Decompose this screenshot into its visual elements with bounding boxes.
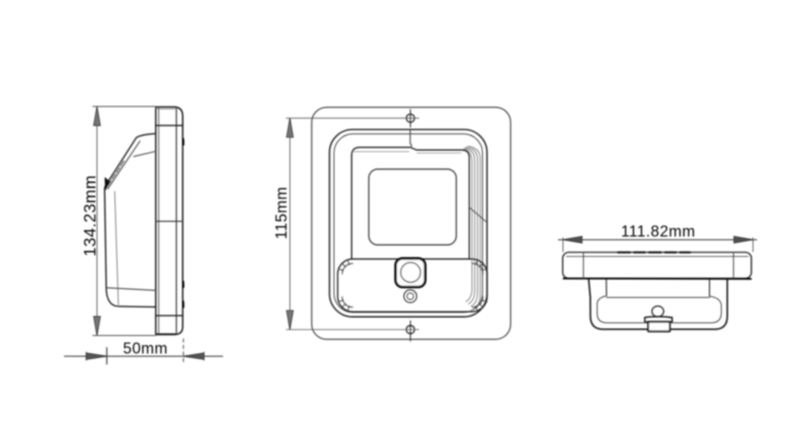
svg-text:111.82mm: 111.82mm: [621, 224, 696, 241]
svg-text:134.23mm: 134.23mm: [82, 175, 100, 257]
svg-text:50mm: 50mm: [123, 341, 168, 358]
svg-text:115mm: 115mm: [274, 187, 291, 240]
